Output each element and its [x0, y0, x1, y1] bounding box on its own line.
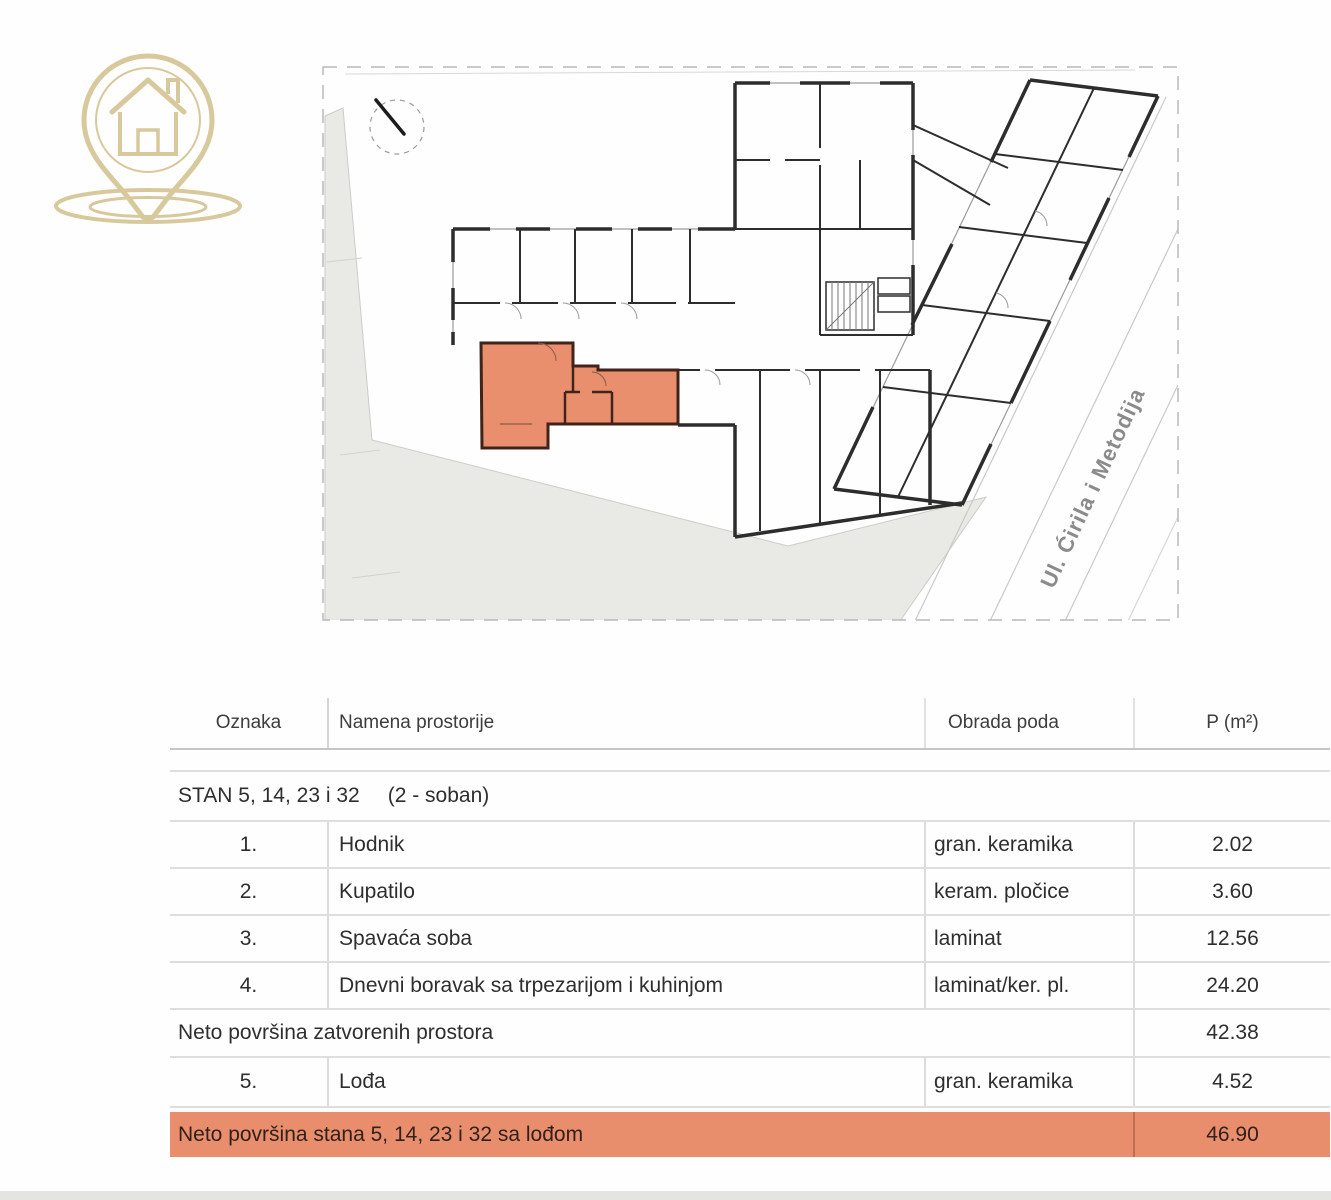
- row-num: 1.: [170, 822, 327, 867]
- floor-plan: Ul. Ćirila i Metodija: [300, 55, 1200, 640]
- table-header-row: Oznaka Namena prostorije Obrada poda P (…: [170, 698, 1330, 750]
- row-floor: laminat: [924, 916, 1133, 961]
- room-spec-table: Oznaka Namena prostorije Obrada poda P (…: [170, 698, 1330, 1157]
- highlighted-apartment: [481, 343, 678, 448]
- table-row: 1. Hodnik gran. keramika 2.02: [170, 820, 1330, 867]
- row-name: Kupatilo: [327, 869, 924, 914]
- loggia-row: 5. Lođa gran. keramika 4.52: [170, 1056, 1330, 1108]
- row-area: 12.56: [1133, 916, 1330, 961]
- row-area: 4.52: [1133, 1058, 1330, 1106]
- section-subtitle: (2 - soban): [388, 784, 490, 808]
- location-pin-icon: [56, 56, 240, 222]
- floorplan-sheet: { "logo": { "icon": "house-location-pin"…: [0, 0, 1331, 1200]
- photo-edge-strip: [0, 1191, 1331, 1200]
- house-icon: [112, 80, 184, 154]
- table-row: 4. Dnevni boravak sa trpezarijom i kuhin…: [170, 961, 1330, 1008]
- row-floor: laminat/ker. pl.: [924, 963, 1133, 1008]
- header-gap: [170, 750, 1330, 770]
- row-floor: gran. keramika: [924, 822, 1133, 867]
- row-num: 4.: [170, 963, 327, 1008]
- section-title-row: STAN 5, 14, 23 i 32 (2 - soban): [170, 770, 1330, 820]
- table-row: 2. Kupatilo keram. pločice 3.60: [170, 867, 1330, 914]
- staircase: [826, 282, 874, 330]
- table-row: 3. Spavaća soba laminat 12.56: [170, 914, 1330, 961]
- row-floor: gran. keramika: [924, 1058, 1133, 1106]
- row-name: Lođa: [327, 1058, 924, 1106]
- site-surroundings: [325, 70, 1178, 621]
- header-obrada: Obrada poda: [924, 698, 1133, 748]
- street-label: Ul. Ćirila i Metodija: [1035, 384, 1150, 592]
- row-floor: keram. pločice: [924, 869, 1133, 914]
- row-num: 5.: [170, 1058, 327, 1106]
- row-num: 3.: [170, 916, 327, 961]
- door-arcs: [505, 211, 1047, 385]
- building-walls: [453, 80, 1158, 537]
- section-title: STAN 5, 14, 23 i 32: [178, 784, 360, 808]
- subtotal-area: 42.38: [1133, 1010, 1330, 1056]
- north-compass-icon: [370, 100, 424, 154]
- total-area: 46.90: [1133, 1112, 1330, 1157]
- house-location-pin-logo: [48, 50, 253, 230]
- total-label: Neto površina stana 5, 14, 23 i 32 sa lo…: [170, 1112, 1133, 1157]
- header-namena: Namena prostorije: [327, 698, 924, 748]
- header-area: P (m²): [1133, 698, 1330, 748]
- row-name: Spavaća soba: [327, 916, 924, 961]
- elevator-shafts: [878, 278, 910, 312]
- subtotal-label: Neto površina zatvorenih prostora: [170, 1010, 1133, 1056]
- subtotal-row: Neto površina zatvorenih prostora 42.38: [170, 1008, 1330, 1056]
- row-area: 2.02: [1133, 822, 1330, 867]
- row-area: 24.20: [1133, 963, 1330, 1008]
- row-area: 3.60: [1133, 869, 1330, 914]
- row-name: Hodnik: [327, 822, 924, 867]
- total-row-highlighted: Neto površina stana 5, 14, 23 i 32 sa lo…: [170, 1112, 1330, 1157]
- row-name: Dnevni boravak sa trpezarijom i kuhinjom: [327, 963, 924, 1008]
- header-oznaka: Oznaka: [170, 698, 327, 748]
- row-num: 2.: [170, 869, 327, 914]
